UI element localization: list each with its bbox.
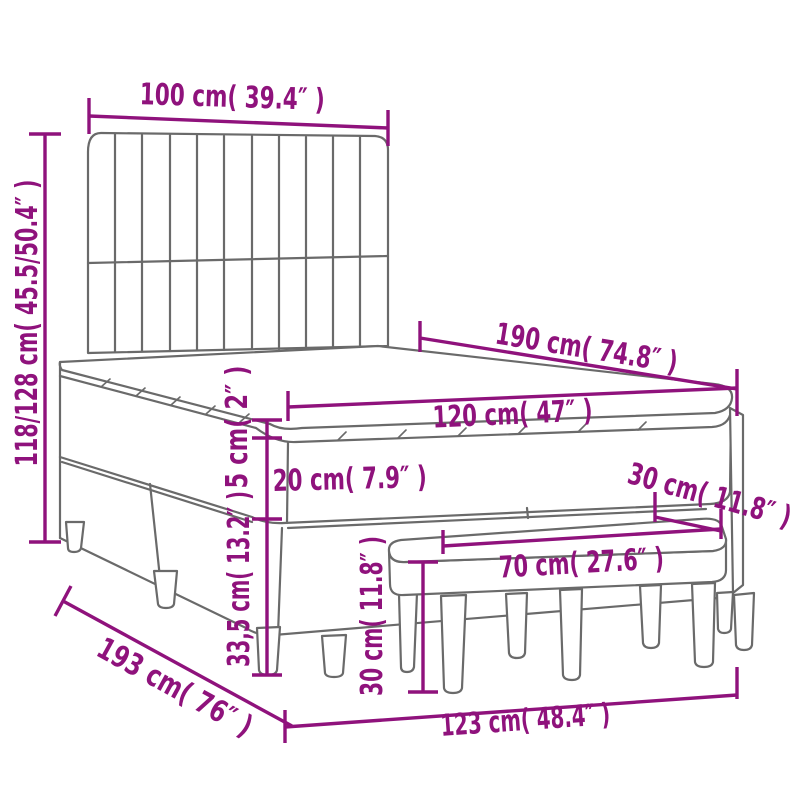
label-mattress-thickness: 20 cm( 7.9″ ) — [272, 460, 427, 499]
bench — [389, 519, 733, 693]
label-floor-width: 123 cm( 48.4″ ) — [439, 697, 611, 744]
bed-line-art — [60, 133, 754, 693]
label-headboard-width: 100 cm( 39.4″ ) — [139, 77, 325, 118]
label-bench-seat-height: 30 cm( 11.8″ ) — [355, 536, 390, 696]
drawer-divider-front — [527, 508, 528, 518]
bench-legs — [399, 583, 733, 693]
drawer-divider-left — [150, 484, 160, 578]
bed-dimension-diagram: 100 cm( 39.4″ ) 118/128 cm( 45.5/50.4″ )… — [0, 0, 800, 800]
headboard — [88, 133, 388, 353]
label-topper-thickness: 5 cm( 2″ ) — [220, 366, 255, 489]
label-base-height: 33,5 cm( 13.2″ ) — [222, 491, 257, 667]
label-overall-height: 118/128 cm( 45.5/50.4″ ) — [10, 180, 45, 467]
dimension-diagram-page: 100 cm( 39.4″ ) 118/128 cm( 45.5/50.4″ )… — [0, 0, 800, 800]
label-bed-width: 120 cm( 47″ ) — [432, 393, 593, 435]
